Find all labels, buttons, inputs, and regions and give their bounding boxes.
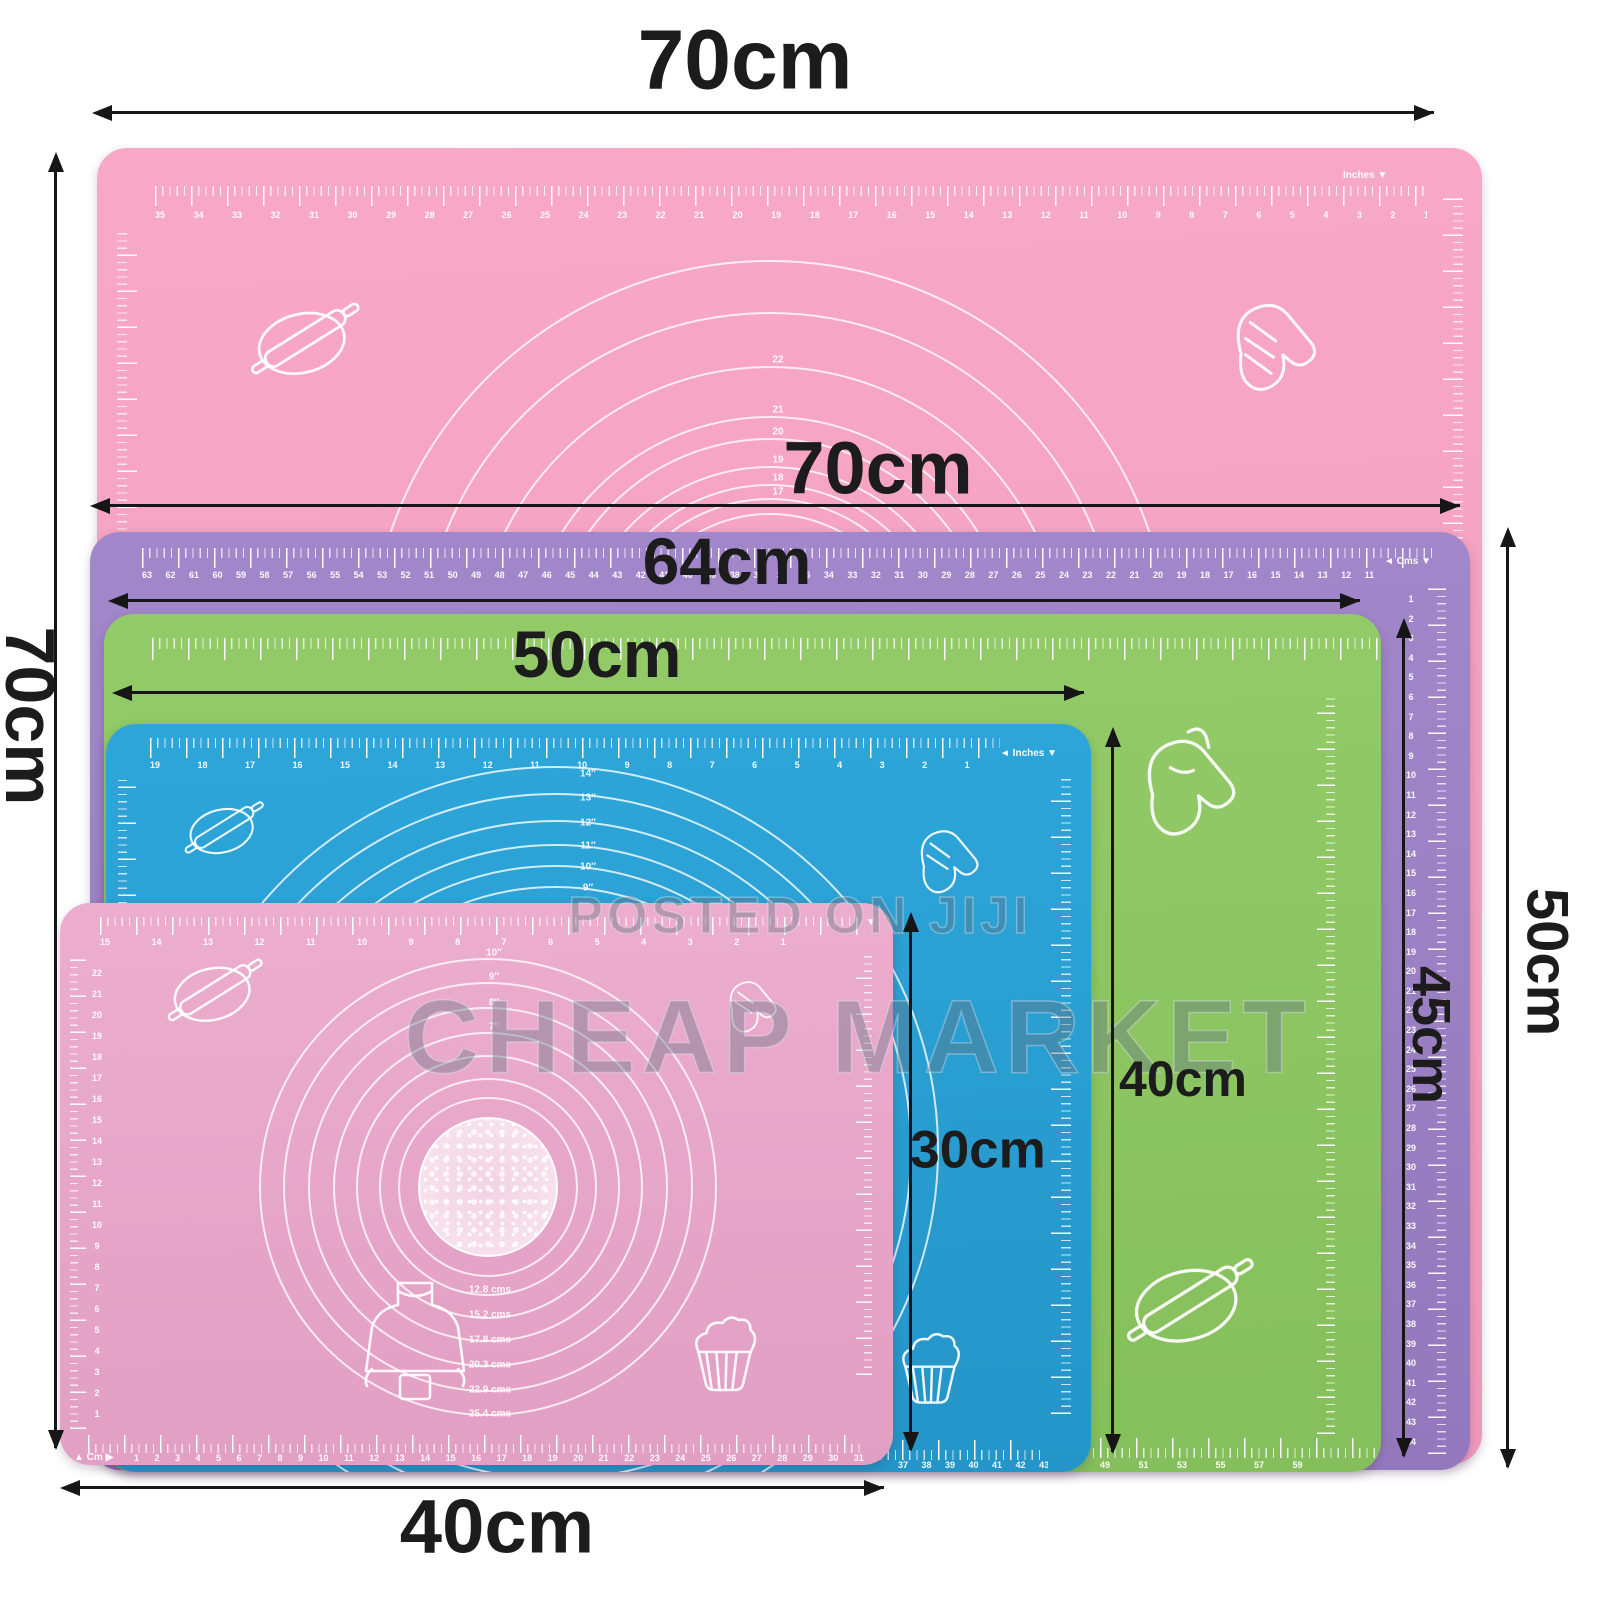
ruler-unit-marker: Inches ▼: [1343, 170, 1387, 181]
arrowhead-down: [1396, 1438, 1412, 1458]
rolling-pin-icon: [1105, 1240, 1275, 1360]
ring-diameter-label: 22.9 cms: [469, 1385, 511, 1396]
arrowhead-down: [48, 1430, 64, 1450]
ring-label: 17: [772, 487, 783, 498]
dimension-label-purple-height: 50cm: [1514, 888, 1581, 1036]
arrowhead-right: [1064, 685, 1084, 701]
dimension-label-green-width: 64cm: [643, 523, 812, 599]
ruler-unit-marker: ◄ Inches ▼: [1000, 748, 1057, 759]
product-photo-stacked-baking-mats: 35 34 33 32 31 30 29 28 27 26 25 24 23 2…: [0, 0, 1600, 1600]
oven-mitt-icon: [1210, 290, 1330, 400]
arrowhead-down: [1500, 1449, 1516, 1469]
dimension-label-blue-width: 50cm: [513, 616, 682, 692]
ruler-top-minor-ticks: [150, 738, 1000, 748]
arrowhead-right: [1414, 105, 1434, 121]
dimension-arrow-green-width: [114, 599, 1360, 602]
cupcake-icon: [682, 1310, 767, 1400]
dimension-arrow-purple-height: [1506, 531, 1509, 1467]
rolling-pin-icon: [240, 286, 370, 391]
ruler-left-numbers: 22 21 20 19 18 17 16 15 14 13 12 11 10 9…: [86, 963, 108, 1425]
ring-label: 11″: [580, 841, 595, 852]
arrowhead-up: [1500, 527, 1516, 547]
arrowhead-left: [112, 685, 132, 701]
ruler-bottom-numbers: 49 51 53 55 57 59: [1100, 1460, 1360, 1470]
dimension-label-smallpink-height: 30cm: [910, 1120, 1046, 1181]
ring-diameter-label: 20.3 cms: [469, 1360, 511, 1371]
rolling-pin-icon: [155, 945, 275, 1035]
ring-diameter-label: 12.8 cms: [469, 1285, 511, 1296]
arrowhead-left: [92, 105, 112, 121]
apron-icon: [360, 1275, 470, 1415]
dimension-label-pink70-width: 70cm: [638, 12, 853, 109]
dimension-label-smallpink-width: 40cm: [400, 1484, 594, 1571]
arrowhead-right: [1440, 498, 1460, 514]
ring-diameter-label: 25.4 cms: [469, 1409, 511, 1420]
dimension-arrow-pink70-width: [98, 111, 1434, 114]
arrowhead-left: [108, 593, 128, 609]
ring-label: 19: [772, 455, 783, 466]
arrowhead-down: [1105, 1434, 1121, 1454]
arrowhead-left: [60, 1480, 80, 1496]
ruler-bottom-minor-ticks: [88, 1444, 864, 1453]
oven-mitt-icon: [1127, 715, 1242, 855]
watermark-posted-on-jiji: POSTED ON JIJI: [568, 886, 1031, 946]
ruler-top-minor-ticks: [152, 638, 1381, 649]
ring-label: 22: [772, 355, 783, 366]
ring-label: 21: [772, 405, 783, 416]
ruler-right-minor-ticks: [1326, 698, 1335, 1434]
arrowhead-up: [48, 152, 64, 172]
arrowhead-up: [1105, 727, 1121, 747]
dimension-label-purple-width: 70cm: [783, 426, 972, 511]
ring-label: 18: [772, 473, 783, 484]
arrowhead-right: [1340, 593, 1360, 609]
arrowhead-left: [90, 498, 110, 514]
ring-diameter-label: 15.2 cms: [469, 1310, 511, 1321]
ruler-top-numbers: 35 34 33 32 31 30 29 28 27 26 25 24 23 2…: [155, 210, 1427, 220]
ring-diameter-label: 17.8 cms: [469, 1335, 511, 1346]
ring-label: 14″: [580, 769, 596, 780]
ruler-bottom-numbers: 37 38 39 40 41 42 43: [898, 1460, 1048, 1470]
cupcake-icon: [890, 1327, 970, 1412]
arrowhead-right: [864, 1480, 884, 1496]
ring-label: 20: [772, 427, 783, 438]
arrowhead-up: [903, 912, 919, 932]
dimension-label-blue-height: 40cm: [1119, 1050, 1247, 1108]
arrowhead-up: [1396, 618, 1412, 638]
ring-label: 10″: [486, 948, 502, 959]
ruler-unit-marker: ◄ Cms ▼: [1384, 556, 1431, 567]
dimension-label-pink70-height: 70cm: [0, 626, 70, 805]
dimension-arrow-purple-width: [96, 504, 1460, 507]
rolling-pin-icon: [174, 790, 274, 865]
dimension-label-green-height: 45cm: [1400, 966, 1462, 1104]
ruler-left-minor-ticks: [70, 957, 78, 1429]
ruler-bottom-numbers: 1 2 3 4 5 6 7 8 9 10 11 12 13 14 15 16 1…: [134, 1453, 872, 1463]
dimension-arrow-blue-height: [1111, 731, 1114, 1452]
ring-label: 13″: [580, 793, 596, 804]
ruler-top-minor-ticks: [155, 186, 1427, 196]
ruler-unit-marker: ▲ Cm ▶: [74, 1452, 113, 1463]
dimension-arrow-smallpink-height: [909, 916, 912, 1450]
ring-label: 12″: [580, 818, 596, 829]
ring-label: 10″: [580, 862, 596, 873]
arrowhead-down: [903, 1432, 919, 1452]
